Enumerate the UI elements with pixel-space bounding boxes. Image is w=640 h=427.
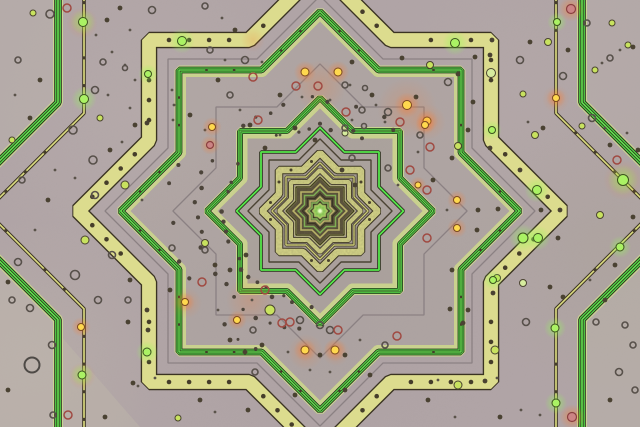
scatter-dot-dd [318, 353, 323, 358]
band-dot [409, 380, 414, 385]
scatter-dot-dd [198, 398, 203, 403]
scatter-dot-sm [375, 104, 378, 107]
band-dot [554, 1, 557, 4]
scatter-dot-dd [131, 381, 136, 386]
scatter-dot-sm [496, 377, 499, 380]
scatter-dot-dd [471, 100, 476, 105]
arc-dot [213, 272, 218, 277]
kaleidoscope-root [0, 0, 640, 427]
scatter-dot-dd [496, 207, 501, 212]
scatter-dot-dd [466, 128, 471, 133]
band-dot [489, 320, 494, 325]
band-dot [227, 380, 232, 385]
scatter-dot-dd [133, 123, 138, 128]
scatter-dot-dd [105, 18, 110, 23]
band-dot [499, 229, 502, 232]
scatter-dot-sm [217, 309, 220, 312]
scatter-dot-gg [79, 18, 88, 27]
arc-dot [360, 136, 364, 140]
band-dot [360, 9, 365, 14]
scatter-dot-sm [359, 339, 362, 342]
scatter-dot-sm [154, 377, 157, 380]
arc-dot [177, 259, 181, 263]
scatter-dot-dd [476, 208, 481, 213]
scatter-dot-dd [603, 298, 608, 303]
scatter-dot-sm [171, 89, 174, 92]
arc-dot [221, 220, 225, 224]
arc-dot [200, 230, 204, 234]
arc-dot [176, 163, 180, 167]
scatter-dot-sm [454, 416, 457, 419]
scatter-dot-dd [539, 208, 544, 213]
band-dot [489, 58, 494, 63]
arc-dot [238, 257, 242, 261]
scatter-dot-dd [461, 321, 466, 326]
scatter-dot-yg [30, 10, 36, 16]
scatter-dot-yo [209, 124, 216, 131]
scatter-dot-sm [121, 141, 124, 144]
arc-dot [236, 162, 240, 166]
arc-dot [351, 129, 355, 133]
band-dot [147, 320, 152, 325]
scatter-dot-dd [491, 291, 496, 296]
scatter-dot-yo [403, 101, 412, 110]
band-dot [469, 380, 474, 385]
scatter-dot-sm [329, 99, 332, 102]
scatter-dot-sm [279, 134, 282, 137]
scatter-dot-gg [490, 277, 497, 284]
scatter-dot-sm [251, 299, 254, 302]
band-dot [499, 190, 502, 193]
arc-dot [282, 294, 285, 297]
scatter-dot-dd [233, 28, 238, 33]
arc-dot [232, 295, 236, 299]
scatter-dot-yo [182, 299, 189, 306]
scatter-dot-dd [313, 138, 318, 143]
arc-dot [311, 95, 314, 98]
arc-dot [219, 209, 224, 214]
scatter-dot-dd [370, 93, 375, 98]
scatter-dot-dd [6, 280, 11, 285]
scatter-dot-yg [592, 67, 598, 73]
ambient-glow [241, 28, 265, 52]
scatter-dot-dd [473, 55, 478, 60]
band-dot [158, 171, 161, 174]
scatter-dot-dd [28, 116, 33, 121]
band-dot [432, 351, 435, 354]
scatter-dot-gg [551, 324, 559, 332]
band-dot [489, 78, 494, 83]
scatter-dot-yo [454, 225, 461, 232]
scatter-dot-dd [613, 263, 618, 268]
band-dot [133, 152, 138, 157]
band-dot [469, 38, 474, 43]
band-dot [299, 390, 302, 393]
band-dot [299, 30, 302, 33]
scatter-dot-dd [146, 328, 151, 333]
arc-dot [211, 159, 215, 163]
center-glow-dot [318, 209, 321, 212]
scatter-dot-gg [145, 71, 152, 78]
scatter-dot-yg [625, 42, 631, 48]
band-dot [167, 380, 172, 385]
scatter-dot-yo [234, 317, 241, 324]
scatter-dot-yo [301, 346, 309, 354]
band-dot [139, 229, 142, 232]
band-dot [82, 390, 85, 393]
scatter-dot-pk [207, 142, 214, 149]
arc-dot [269, 322, 272, 325]
scatter-dot-sm [604, 127, 607, 130]
scatter-dot-gg [143, 348, 151, 356]
scatter-dot-dd [246, 408, 251, 413]
scatter-dot-sm [349, 84, 352, 87]
kaleidoscope-svg [0, 0, 640, 427]
band-dot [338, 30, 341, 33]
scatter-dot-sm [417, 151, 420, 154]
scatter-dot-sm [446, 209, 449, 212]
band-dot [338, 390, 341, 393]
scatter-dot-sm [74, 177, 77, 180]
scatter-dot-sm [95, 34, 98, 37]
scatter-dot-sm [129, 107, 132, 110]
arc-dot [391, 128, 395, 132]
scatter-dot-dd [541, 126, 546, 131]
scatter-dot-dd [400, 56, 405, 61]
arc-dot [226, 190, 230, 194]
scatter-dot-dd [558, 208, 563, 213]
band-dot [205, 351, 208, 354]
scatter-dot-sm [527, 121, 530, 124]
arc-dot [354, 105, 358, 109]
band-dot [489, 360, 494, 365]
scatter-dot-gg [552, 399, 560, 407]
band-dot [205, 69, 208, 72]
band-dot [90, 223, 95, 228]
scatter-dot-dd [128, 278, 133, 283]
scatter-dot-sm [134, 79, 137, 82]
band-dot [554, 363, 557, 366]
scatter-dot-yg [9, 137, 15, 143]
band-dot [207, 380, 212, 385]
arc-dot [256, 280, 260, 284]
scatter-dot-dd [126, 320, 131, 325]
scatter-dot-dd [475, 228, 480, 233]
band-dot [489, 340, 494, 345]
scatter-dot-gg [489, 127, 496, 134]
arc-dot [253, 316, 258, 321]
arc-dot [270, 295, 275, 300]
scatter-dot-dd [561, 295, 566, 300]
scatter-dot-dd [528, 40, 533, 45]
scatter-dot-yg [265, 305, 275, 315]
scatter-dot-sm [224, 59, 227, 62]
scatter-dot-dd [244, 253, 249, 258]
arc-dot [241, 124, 245, 128]
scatter-dot-yg [609, 20, 615, 26]
scatter-dot-dd [228, 338, 233, 343]
arc-dot [196, 215, 200, 219]
scatter-dot-sm [107, 94, 110, 97]
scatter-dot-gg [451, 39, 460, 48]
band-dot [374, 394, 379, 399]
scatter-dot-gg [533, 186, 542, 195]
scatter-dot-dd [448, 307, 453, 312]
band-dot [4, 229, 7, 232]
band-dot [261, 24, 266, 29]
scatter-dot-yg [491, 346, 499, 354]
scatter-dot-dd [278, 93, 283, 98]
scatter-dot-yg [427, 62, 434, 69]
band-dot [178, 124, 181, 127]
scatter-dot-dd [548, 285, 553, 290]
scatter-dot-dd [608, 398, 613, 403]
scatter-dot-yo [415, 182, 421, 188]
band-dot [158, 249, 161, 252]
scatter-dot-sm [137, 385, 140, 388]
band-dot [429, 38, 434, 43]
arc-dot [307, 127, 311, 131]
scatter-dot-sm [397, 184, 400, 187]
scatter-dot-sm [221, 17, 224, 20]
scatter-dot-dd [108, 148, 113, 153]
scatter-dot-sm [261, 61, 264, 64]
scatter-dot-yg [455, 143, 462, 150]
band-dot [479, 249, 482, 252]
scatter-dot-yg [520, 91, 526, 97]
scatter-dot-sm [301, 96, 304, 99]
scatter-dot-dd [631, 215, 636, 220]
scatter-dot-dd [6, 388, 11, 393]
scatter-dot-dd [260, 343, 265, 348]
scatter-dot-dd [168, 288, 173, 293]
scatter-dot-yo [454, 197, 461, 204]
scatter-dot-sm [619, 49, 622, 52]
scatter-dot-dd [145, 308, 150, 313]
arc-dot [269, 111, 273, 115]
band-dot [280, 370, 283, 373]
scatter-dot-sm [34, 229, 37, 232]
band-dot [517, 251, 522, 256]
band-dot [104, 237, 109, 242]
arc-dot [237, 338, 240, 341]
arc-dot [226, 239, 230, 243]
scatter-dot-dd [213, 263, 218, 268]
scatter-dot-dd [488, 53, 493, 58]
band-dot [360, 408, 365, 413]
arc-dot [224, 282, 228, 286]
scatter-dot-dd [145, 121, 150, 126]
scatter-dot-sm [589, 279, 592, 282]
scatter-dot-sm [384, 121, 387, 124]
arc-dot [199, 170, 203, 174]
band-dot [147, 98, 152, 103]
scatter-dot-yg [545, 39, 552, 46]
arc-dot [199, 186, 204, 191]
scatter-dot-yo [422, 122, 429, 129]
band-dot [233, 69, 236, 72]
arc-dot [290, 300, 294, 304]
scatter-dot-dd [216, 78, 221, 83]
scatter-dot-dd [350, 60, 355, 65]
scatter-dot-sm [309, 369, 312, 372]
band-dot [280, 49, 283, 52]
scatter-dot-yg [97, 115, 103, 121]
scatter-dot-yg [579, 123, 585, 129]
arc-dot [246, 275, 250, 279]
band-dot [432, 69, 435, 72]
band-dot [574, 131, 577, 134]
scatter-dot-sm [626, 132, 629, 135]
arc-dot [297, 327, 301, 331]
scatter-dot-sm [111, 51, 114, 54]
band-dot [104, 180, 109, 185]
arc-dot [239, 267, 244, 272]
band-dot [374, 24, 379, 29]
band-dot [82, 418, 85, 421]
band-dot [275, 408, 280, 413]
arc-dot [171, 221, 175, 225]
scatter-dot-sm [141, 199, 144, 202]
band-dot [63, 288, 66, 291]
band-dot [178, 323, 181, 326]
band-dot [187, 380, 192, 385]
arc-dot [254, 347, 258, 351]
scatter-dot-dd [343, 353, 348, 358]
arc-dot [187, 276, 191, 280]
scatter-dot-pk [568, 413, 577, 422]
band-dot [24, 170, 27, 173]
scatter-dot-dd [46, 198, 51, 203]
band-dot [43, 151, 46, 154]
scatter-dot-dd [353, 183, 358, 188]
scatter-dot-dd [263, 146, 268, 151]
scatter-dot-dd [450, 156, 455, 161]
band-dot [449, 380, 454, 385]
band-dot [289, 422, 294, 427]
arc-dot [318, 122, 322, 126]
scatter-dot-sm [129, 29, 132, 32]
scatter-dot-gg [518, 233, 528, 243]
scatter-dot-dd [431, 178, 436, 183]
scatter-dot-dd [556, 236, 561, 241]
band-dot [82, 56, 85, 59]
scatter-dot-yg [175, 415, 181, 421]
scatter-dot-gg [178, 37, 187, 46]
scatter-dot-yg [81, 236, 89, 244]
scatter-dot-dd [38, 78, 43, 83]
band-dot [207, 38, 212, 43]
scatter-dot-dd [483, 379, 488, 384]
arc-dot [275, 134, 278, 137]
scatter-dot-yg [532, 132, 539, 139]
arc-dot [281, 103, 285, 107]
scatter-dot-dd [228, 268, 233, 273]
scatter-dot-dd [243, 350, 248, 355]
arc-dot [297, 131, 300, 134]
scatter-dot-sm [214, 411, 217, 414]
arc-dot [222, 322, 226, 326]
scatter-dot-gg [80, 95, 89, 104]
band-dot [358, 49, 361, 52]
scatter-dot-sm [329, 371, 332, 374]
band-dot [633, 229, 636, 232]
scatter-dot-yg [121, 181, 129, 189]
scatter-dot-dd [490, 38, 495, 43]
scatter-dot-yg [454, 381, 462, 389]
scatter-dot-yo [78, 324, 85, 331]
band-dot [118, 166, 123, 171]
band-dot [594, 151, 597, 154]
scatter-dot-dd [343, 388, 348, 393]
band-dot [233, 351, 236, 354]
scatter-dot-sm [173, 104, 176, 107]
band-dot [261, 394, 266, 399]
scatter-dot-sm [601, 62, 604, 65]
scatter-dot-sm [539, 414, 542, 417]
scatter-dot-sm [172, 119, 175, 122]
scatter-dot-sm [239, 109, 242, 112]
scatter-dot-gg [616, 243, 624, 251]
center-glow [311, 202, 329, 220]
band-dot [429, 380, 434, 385]
scatter-dot-yg [597, 212, 604, 219]
scatter-dot-dd [293, 126, 298, 131]
scatter-dot-sm [437, 379, 440, 382]
scatter-dot-pg [520, 280, 527, 287]
scatter-dot-dd [518, 168, 523, 173]
band-dot [594, 268, 597, 271]
scatter-dot-dd [631, 45, 636, 50]
scatter-dot-pg [487, 69, 496, 78]
scatter-dot-dd [118, 6, 123, 11]
scatter-dot-sm [14, 94, 17, 97]
scatter-dot-dd [368, 373, 373, 378]
scatter-dot-sm [287, 351, 290, 354]
arc-dot [167, 181, 171, 185]
scatter-dot-gg [554, 19, 561, 26]
scatter-dot-dd [340, 168, 345, 173]
scatter-dot-dd [608, 143, 613, 148]
arc-dot [241, 308, 244, 311]
scatter-dot-yo [301, 68, 309, 76]
scatter-dot-gg [78, 371, 86, 379]
scatter-dot-dd [450, 268, 455, 273]
scatter-dot-dd [426, 398, 431, 403]
scatter-dot-dd [566, 48, 571, 53]
scatter-dot-dd [293, 393, 298, 398]
scatter-dot-dd [466, 308, 471, 313]
scatter-dot-gg [618, 175, 629, 186]
scatter-dot-sm [520, 409, 523, 412]
band-dot [139, 190, 142, 193]
arc-dot [310, 305, 314, 309]
scatter-dot-dd [488, 146, 493, 151]
scatter-dot-yo [331, 346, 339, 354]
band-dot [178, 96, 181, 99]
scatter-dot-dd [498, 415, 503, 420]
band-dot [503, 265, 508, 270]
scatter-dot-dd [248, 123, 253, 128]
scatter-dot-yo [334, 68, 342, 76]
arc-dot [193, 200, 197, 204]
band-dot [460, 124, 463, 127]
scatter-dot-yo [553, 95, 560, 102]
band-dot [227, 38, 232, 43]
arc-dot [224, 230, 228, 234]
scatter-dot-sm [351, 119, 354, 122]
band-dot [358, 370, 361, 373]
